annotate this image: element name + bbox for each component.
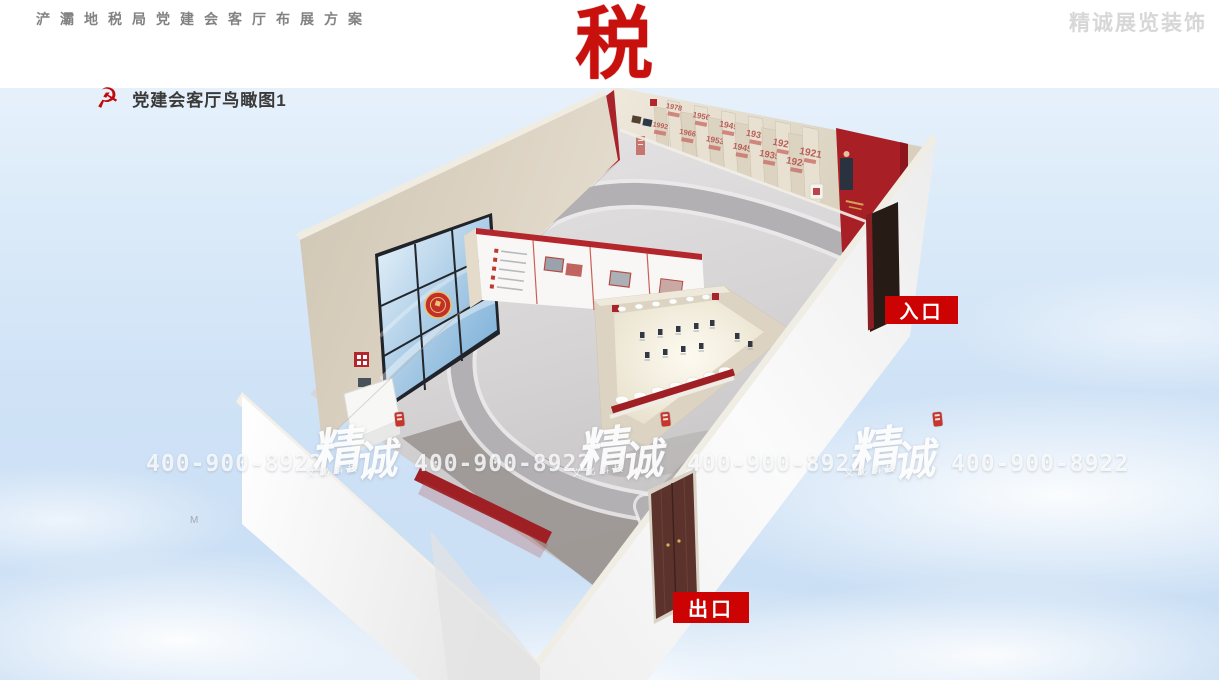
hero-portrait [699,343,704,349]
stray-watermark-letter: M [190,515,198,526]
door-handle [677,539,680,542]
portrait-caption [645,360,651,361]
dome-lamp [702,294,710,299]
hero-portrait [676,326,681,332]
portrait-caption [640,340,646,341]
exit-label: 出口 [673,592,749,623]
portrait-caption [676,334,682,335]
leader-portrait-head [844,151,850,157]
exhibit-photo [609,271,631,287]
logo-dot [363,361,367,365]
text-line [638,144,643,145]
lamp-red-block [712,293,719,300]
section-title-text: 党建会客厅鸟瞰图1 [132,86,286,111]
hero-portrait [645,352,650,358]
exhibit-photo [565,263,582,277]
exterior-wall-shade [430,530,540,680]
hero-portrait [748,341,753,347]
dome-lamp [686,296,694,301]
portrait-caption [681,354,687,355]
leader-portrait [840,158,853,190]
portrait-caption [748,349,754,350]
exhibit-photo [544,257,563,272]
hero-portrait [640,332,645,338]
portrait-caption [735,341,741,342]
hero-portrait [663,349,668,355]
project-title: 浐灞地税局党建会客厅布展方案 [36,9,372,29]
portrait-caption [699,351,705,352]
portrait-caption [710,328,716,329]
red-logo-plate [650,99,657,106]
logo-dot [357,355,361,359]
hero-portrait [694,323,699,329]
company-watermark: 精诚展览装饰 [1069,7,1207,37]
portrait-caption [658,337,664,338]
hero-portrait [658,329,663,335]
party-emblem-icon: ☭ [93,83,121,113]
presentation-page: 1992197819661956195319491945193719351927… [0,0,1219,680]
door-handle [666,543,669,546]
logo-dot [357,361,361,365]
dome-lamp [652,301,660,306]
dome-lamp [635,304,643,309]
dome-lamp [669,299,677,304]
hero-portrait [735,333,740,339]
logo-dot [363,355,367,359]
tax-seal-logo: 税 [574,2,654,88]
dome-lamp [618,306,626,311]
plaque-emblem [813,188,820,195]
entrance-label: 入口 [885,296,958,324]
hero-portrait [710,320,715,326]
hero-portrait [681,346,686,352]
section-title: ☭ 党建会客厅鸟瞰图1 [95,83,287,113]
portrait-caption [663,357,669,358]
portrait-caption [694,331,700,332]
text-line [638,140,643,141]
